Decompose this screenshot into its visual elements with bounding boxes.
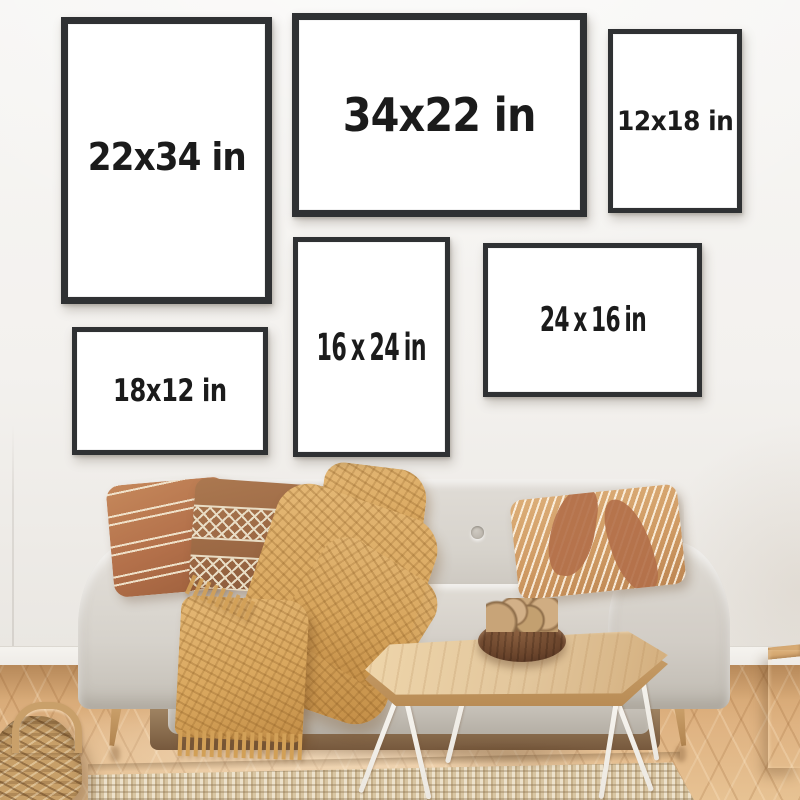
table-floor-shadow [360, 736, 660, 776]
wood-cube-stool [768, 650, 800, 768]
frame-size-label: 34x22 in [343, 88, 536, 142]
sofa-leg-reflection [110, 746, 120, 762]
frame-size-label: 22x34 in [87, 135, 245, 179]
frame-size-label: 12x18 in [617, 106, 733, 137]
living-room-frame-size-mockup: 22x34 in 34x22 in 12x18 in 16 x 24 in 24… [0, 0, 800, 800]
frame-18x12: 18x12 in [72, 327, 268, 455]
sofa-tufting-button [471, 526, 484, 539]
frame-34x22: 34x22 in [292, 13, 587, 217]
frame-24x16: 24 x 16 in [483, 243, 702, 397]
frame-size-label: 18x12 in [113, 373, 227, 409]
sofa-leg-reflection [676, 746, 686, 762]
blanket-fringe [178, 730, 305, 760]
frame-size-label: 24 x 16 in [539, 300, 645, 340]
wall-panel-molding [12, 425, 14, 660]
frame-22x34: 22x34 in [61, 17, 272, 304]
pillow-leaf-motif [545, 484, 601, 579]
frame-12x18: 12x18 in [608, 29, 742, 213]
striped-tan-pillow [509, 483, 687, 600]
walnuts-in-bowl [486, 598, 558, 632]
frame-16x24: 16 x 24 in [293, 237, 450, 457]
basket-handle [12, 702, 82, 753]
frame-size-label: 16 x 24 in [317, 326, 427, 369]
pillow-leaf-motif [598, 493, 663, 596]
